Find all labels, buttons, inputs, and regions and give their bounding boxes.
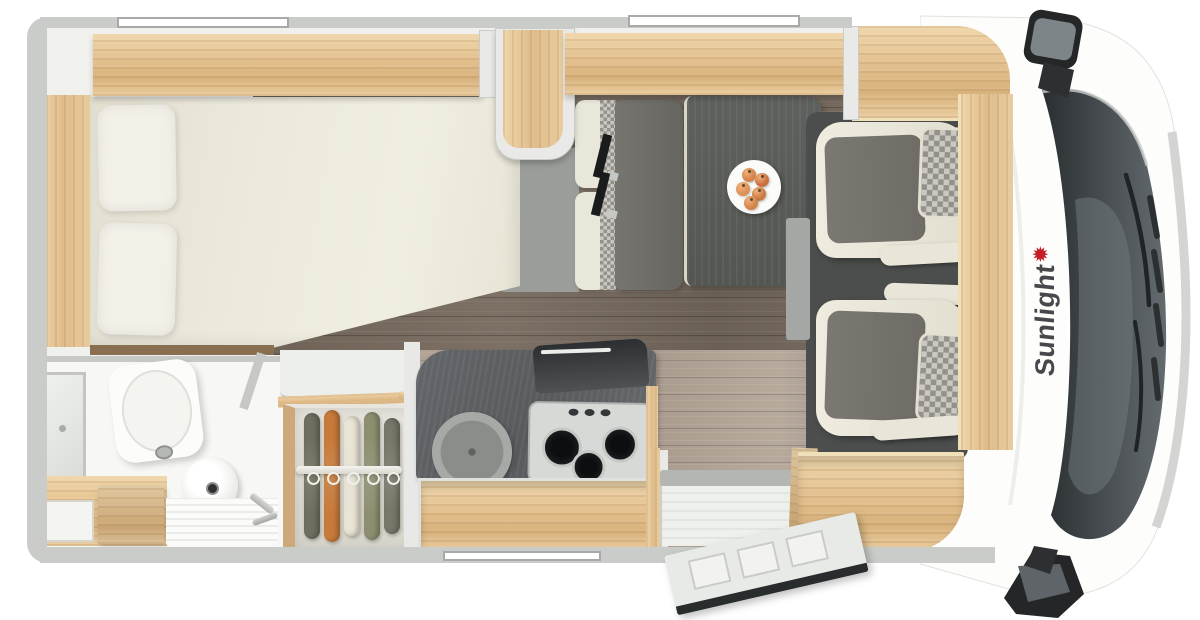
garment [304, 413, 320, 539]
window-dinette-top [628, 15, 800, 27]
fruit-stem [761, 175, 764, 178]
door-jamb [646, 448, 660, 548]
motorhome-floorplan: Sunlight ✹ [0, 0, 1200, 620]
stove-knob [568, 409, 578, 416]
kitchen-base-cabinet [418, 478, 664, 554]
stove-lid-open [532, 338, 649, 394]
pillow [97, 104, 177, 211]
fruit-plate [727, 160, 781, 214]
overhead-cabinet-dinette [565, 33, 845, 95]
fruit-stem [758, 189, 761, 192]
window-rear-top [117, 17, 289, 28]
fruit [742, 168, 756, 182]
cab-seat-passenger [816, 290, 968, 440]
wall-left [27, 17, 47, 563]
stove-knob [584, 409, 594, 416]
counter-sink-inset [44, 500, 94, 542]
lid-glint [541, 348, 611, 354]
garment [364, 412, 380, 540]
fruit-stem [750, 198, 753, 201]
pillow [97, 222, 178, 336]
tv-cabinet-front [503, 30, 563, 148]
cabinet-end-cap [843, 26, 859, 120]
cab-seat-driver [816, 118, 968, 260]
cab-side-shelf [786, 218, 810, 340]
hanger-hook-icon [367, 472, 380, 485]
bench-seat-cushion [615, 100, 683, 290]
fruit [744, 196, 758, 210]
cab-side-panel [958, 94, 1013, 450]
door-molding [688, 552, 732, 590]
hanger-hook-icon [327, 472, 340, 485]
wardrobe-top-panel [280, 350, 406, 399]
door-molding [736, 541, 780, 579]
window-kitchen-bottom [443, 551, 601, 561]
fruit [755, 173, 769, 187]
hanging-clothes [300, 410, 400, 542]
bathroom-storage-box [98, 486, 164, 544]
seat-back-cushion [824, 134, 926, 243]
toilet [106, 357, 205, 465]
sun-star-icon: ✹ [1029, 245, 1054, 263]
side-mirror-top [1022, 8, 1085, 71]
brand-logo-text: Sunlight [1030, 262, 1061, 377]
hanger-hook-icon [307, 472, 320, 485]
gas-stove [527, 401, 652, 485]
stove-knob [600, 409, 610, 416]
seat-back-cushion [824, 310, 926, 421]
hanger-hook-icon [347, 472, 360, 485]
bed-foot-trim [90, 345, 274, 355]
door-molding [785, 530, 829, 568]
fruit [736, 182, 750, 196]
mirror-knob [59, 425, 66, 432]
fruit-stem [748, 170, 751, 173]
fruit-stem [742, 184, 745, 187]
overhead-cabinet-rear [93, 34, 483, 96]
brand-logo: Sunlight ✹ [1030, 186, 1060, 376]
garment [324, 410, 340, 542]
garment [384, 418, 400, 534]
hanger-hook-icon [387, 472, 400, 485]
basin-drain [206, 482, 219, 495]
garment [344, 416, 360, 536]
burner [602, 426, 639, 463]
